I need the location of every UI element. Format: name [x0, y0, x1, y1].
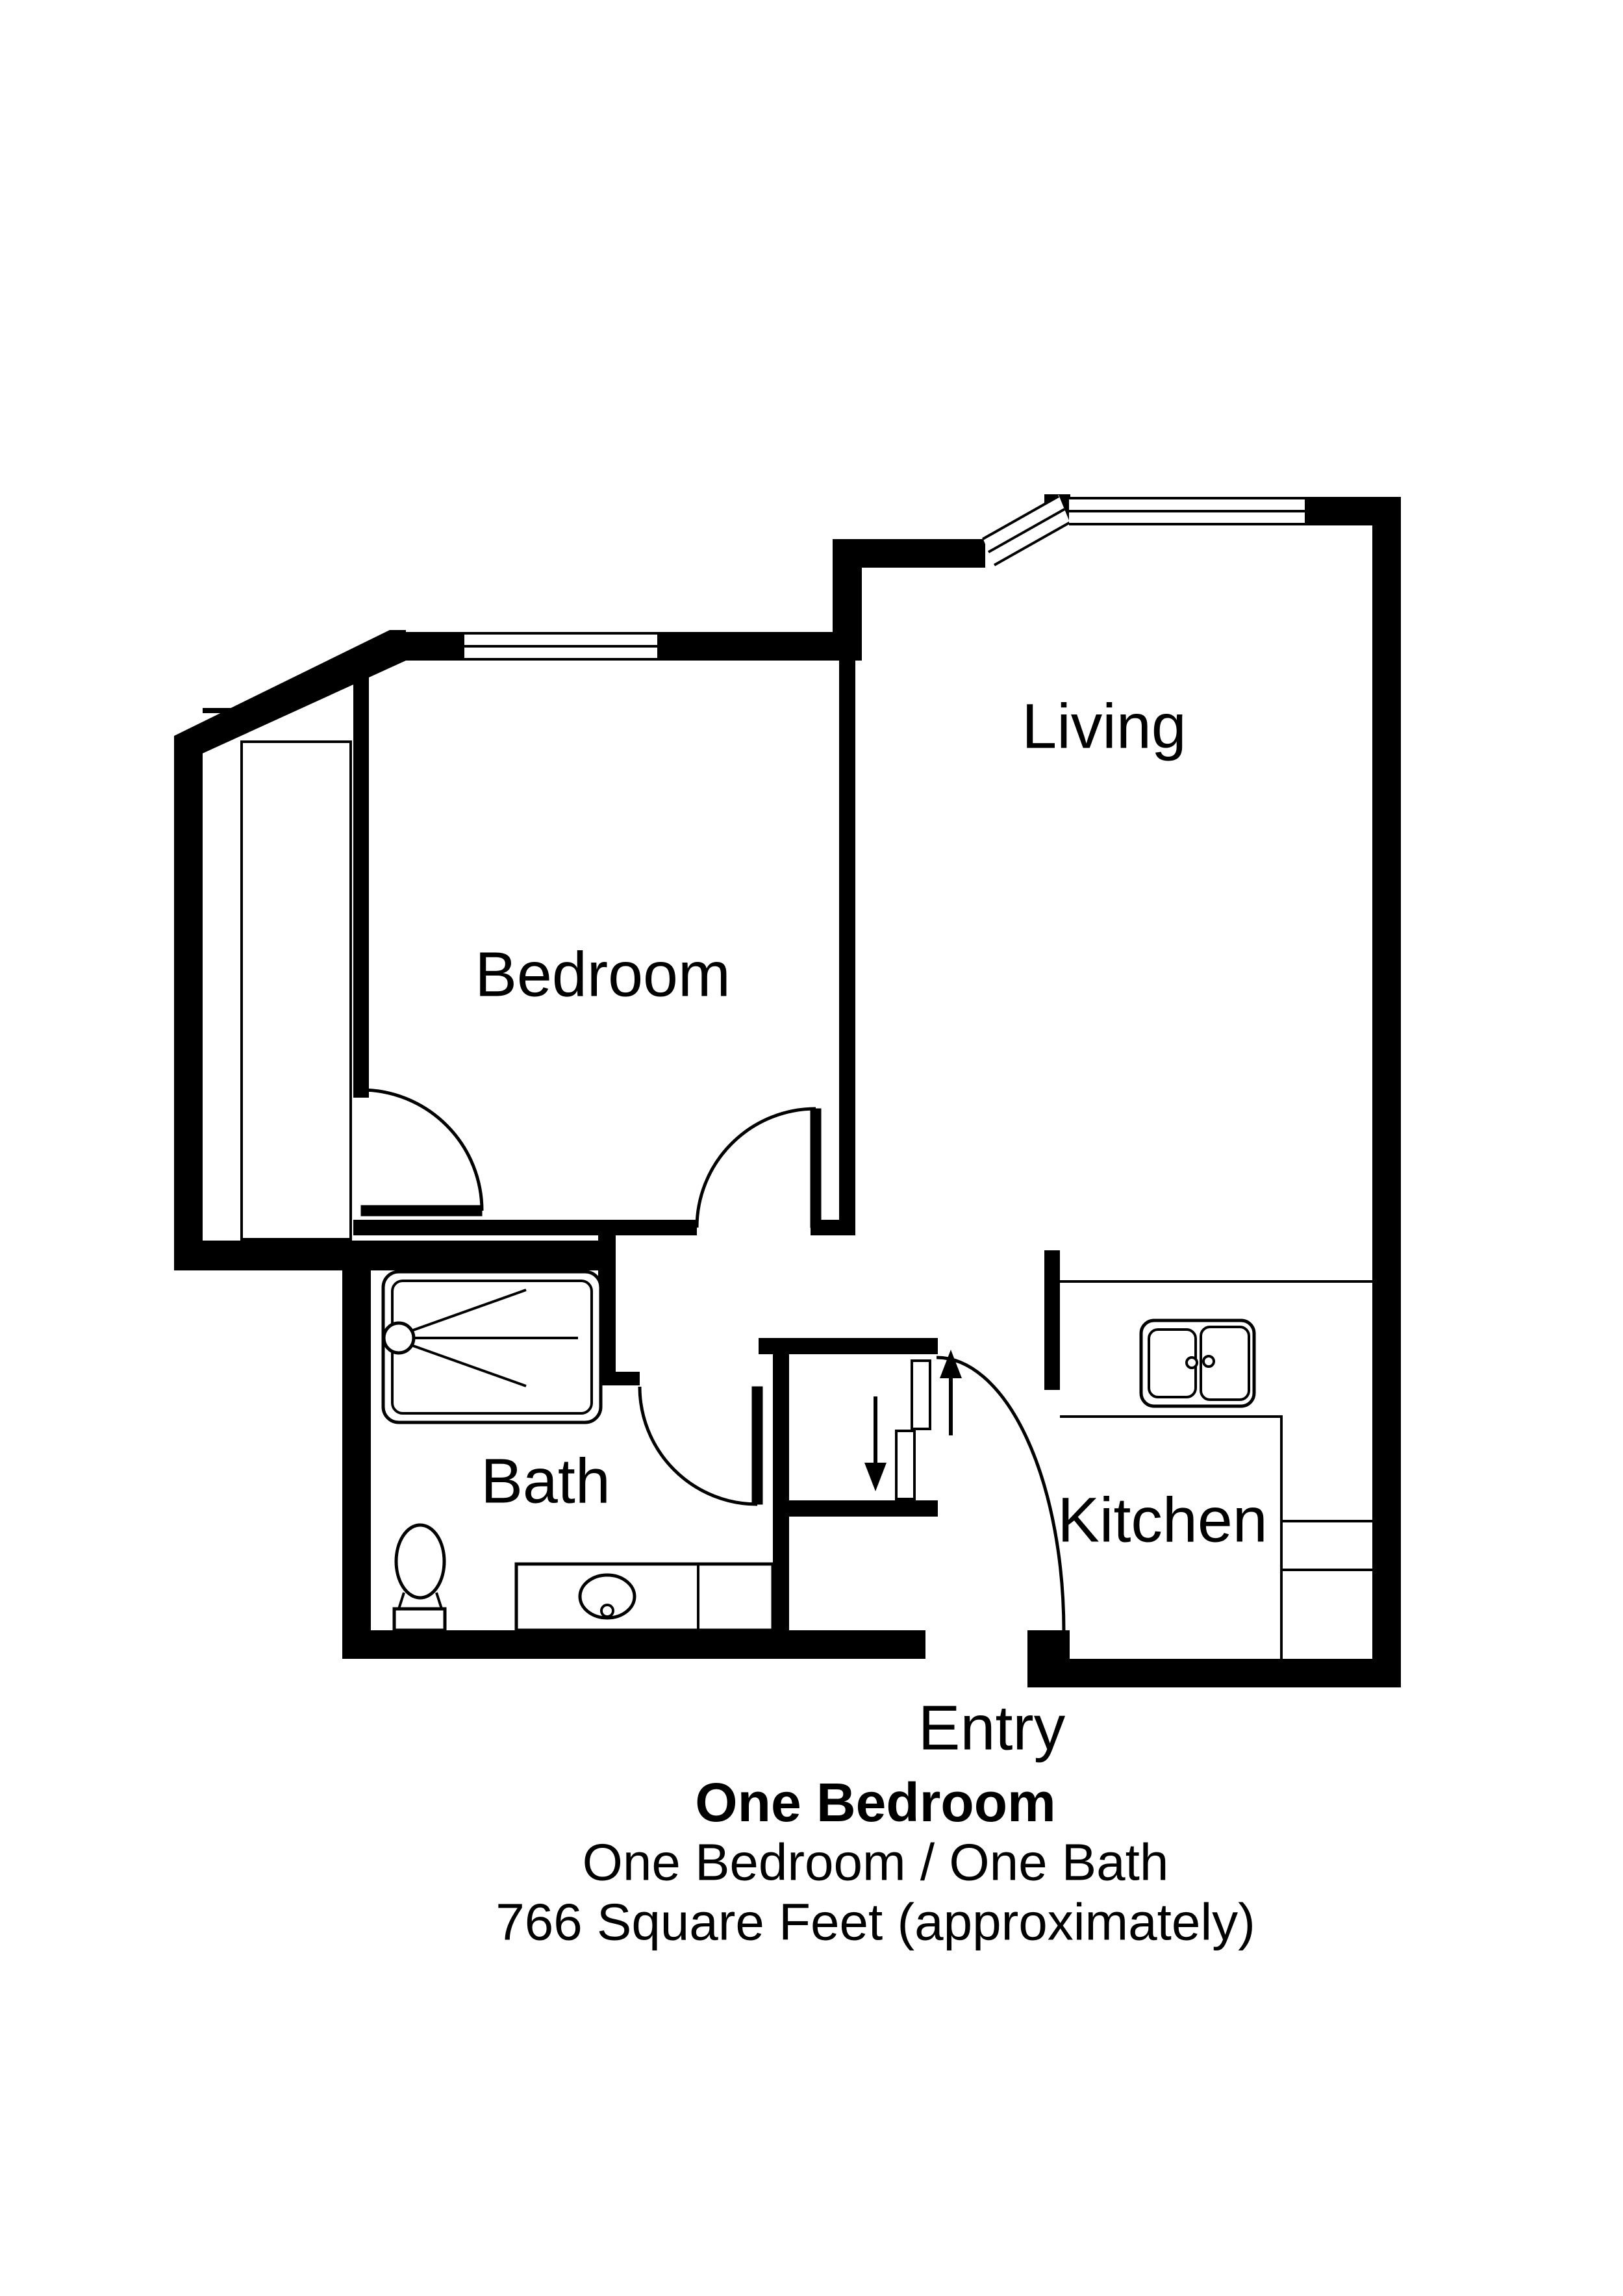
bedroom-closet-door — [361, 1090, 482, 1216]
living-bay-diagonal-window — [983, 495, 1070, 566]
wall-segment — [1027, 1630, 1070, 1687]
toilet — [394, 1525, 445, 1630]
bedroom-door — [697, 1109, 821, 1228]
title-line-2: One Bedroom / One Bath — [583, 1834, 1169, 1891]
wall-segment — [657, 632, 862, 661]
wall-segment — [616, 1372, 640, 1385]
wall-segment — [174, 1241, 616, 1270]
windows — [464, 495, 1305, 661]
wall-segment — [773, 1500, 938, 1517]
shower — [383, 1272, 601, 1422]
door-swing-arc — [640, 1387, 757, 1504]
bedroom-window — [464, 632, 657, 661]
wall-segment — [682, 1220, 697, 1235]
wall-segment — [1027, 1659, 1401, 1687]
room-label-entry: Entry — [918, 1693, 1066, 1763]
title-line-1: One Bedroom — [695, 1772, 1055, 1833]
kitchen-sink — [1141, 1320, 1254, 1406]
room-label-living: Living — [1022, 691, 1186, 762]
wall-segment — [1372, 497, 1401, 1687]
wall-segment — [833, 539, 985, 568]
wall-segment — [342, 1630, 925, 1659]
wall-segment — [353, 1220, 697, 1235]
wall-segment — [174, 736, 203, 1270]
sliding-panel — [912, 1361, 930, 1429]
wall-segment — [839, 661, 855, 1235]
vanity-sink — [516, 1564, 773, 1630]
door-swing-arc — [937, 1357, 1064, 1632]
entry-door — [937, 1357, 1064, 1632]
bath-door — [640, 1387, 762, 1504]
title-line-3: 766 Square Feet (approximately) — [496, 1893, 1255, 1951]
living-top-window — [1069, 497, 1305, 525]
door-swing-arc — [697, 1109, 816, 1228]
floorplan-drawing: Bedroom Living Bath Kitchen Entry One Be… — [0, 0, 1623, 2296]
room-label-bath: Bath — [481, 1446, 610, 1517]
faucet-hole-icon — [1203, 1356, 1214, 1367]
room-label-bedroom: Bedroom — [475, 939, 731, 1010]
bedroom-closet — [203, 662, 368, 1239]
drain-icon — [601, 1605, 613, 1617]
wall-segment — [353, 661, 369, 1098]
title-block: One Bedroom One Bedroom / One Bath 766 S… — [496, 1772, 1255, 1951]
door-swing-arc — [361, 1090, 482, 1211]
wall-segment — [1044, 1250, 1060, 1390]
room-label-kitchen: Kitchen — [1057, 1485, 1268, 1556]
wall-segment — [773, 1338, 789, 1630]
wall-segment — [342, 1241, 371, 1659]
faucet-hole-icon — [1187, 1357, 1197, 1368]
sliding-panel — [896, 1431, 914, 1499]
floorplan-page: Bedroom Living Bath Kitchen Entry One Be… — [0, 0, 1623, 2296]
entry-closet — [864, 1350, 962, 1499]
down-arrow-icon — [864, 1396, 887, 1491]
